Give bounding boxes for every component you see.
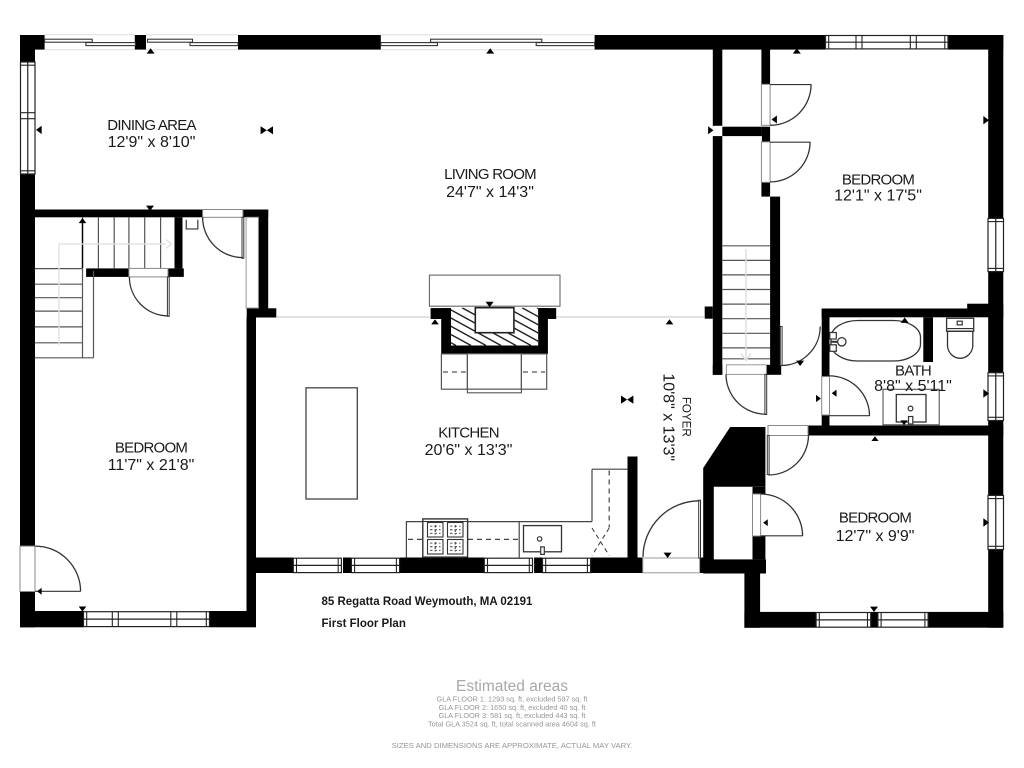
svg-text:LIVING ROOM: LIVING ROOM [444, 166, 536, 183]
svg-text:11'7" x 21'8": 11'7" x 21'8" [108, 457, 195, 474]
svg-text:First Floor Plan: First Floor Plan [322, 618, 406, 630]
svg-text:10'8" x 13'3": 10'8" x 13'3" [660, 373, 677, 461]
svg-text:BEDROOM: BEDROOM [115, 440, 188, 457]
svg-text:20'6" x 13'3": 20'6" x 13'3" [425, 442, 513, 459]
svg-text:12'7" x 9'9": 12'7" x 9'9" [836, 528, 915, 545]
svg-text:Estimated areas: Estimated areas [456, 678, 568, 695]
svg-text:FOYER: FOYER [680, 397, 693, 437]
svg-text:SIZES AND DIMENSIONS ARE APPRO: SIZES AND DIMENSIONS ARE APPROXIMATE, AC… [392, 741, 633, 750]
svg-text:24'7" x 14'3": 24'7" x 14'3" [446, 184, 534, 201]
svg-text:8'8" x 5'11": 8'8" x 5'11" [874, 378, 952, 395]
svg-text:12'1" x 17'5": 12'1" x 17'5" [834, 188, 922, 205]
svg-text:KITCHEN: KITCHEN [438, 425, 499, 442]
svg-text:Total GLA 3524 sq. ft, total s: Total GLA 3524 sq. ft, total scanned are… [428, 719, 596, 728]
svg-text:BATH: BATH [895, 363, 931, 380]
svg-text:BEDROOM: BEDROOM [839, 510, 912, 527]
svg-text:DINING AREA: DINING AREA [107, 117, 196, 134]
svg-text:12'9" x 8'10": 12'9" x 8'10" [108, 134, 196, 151]
svg-text:85 Regatta Road Weymouth, MA 0: 85 Regatta Road Weymouth, MA 02191 [322, 596, 533, 608]
svg-text:BEDROOM: BEDROOM [842, 172, 915, 189]
